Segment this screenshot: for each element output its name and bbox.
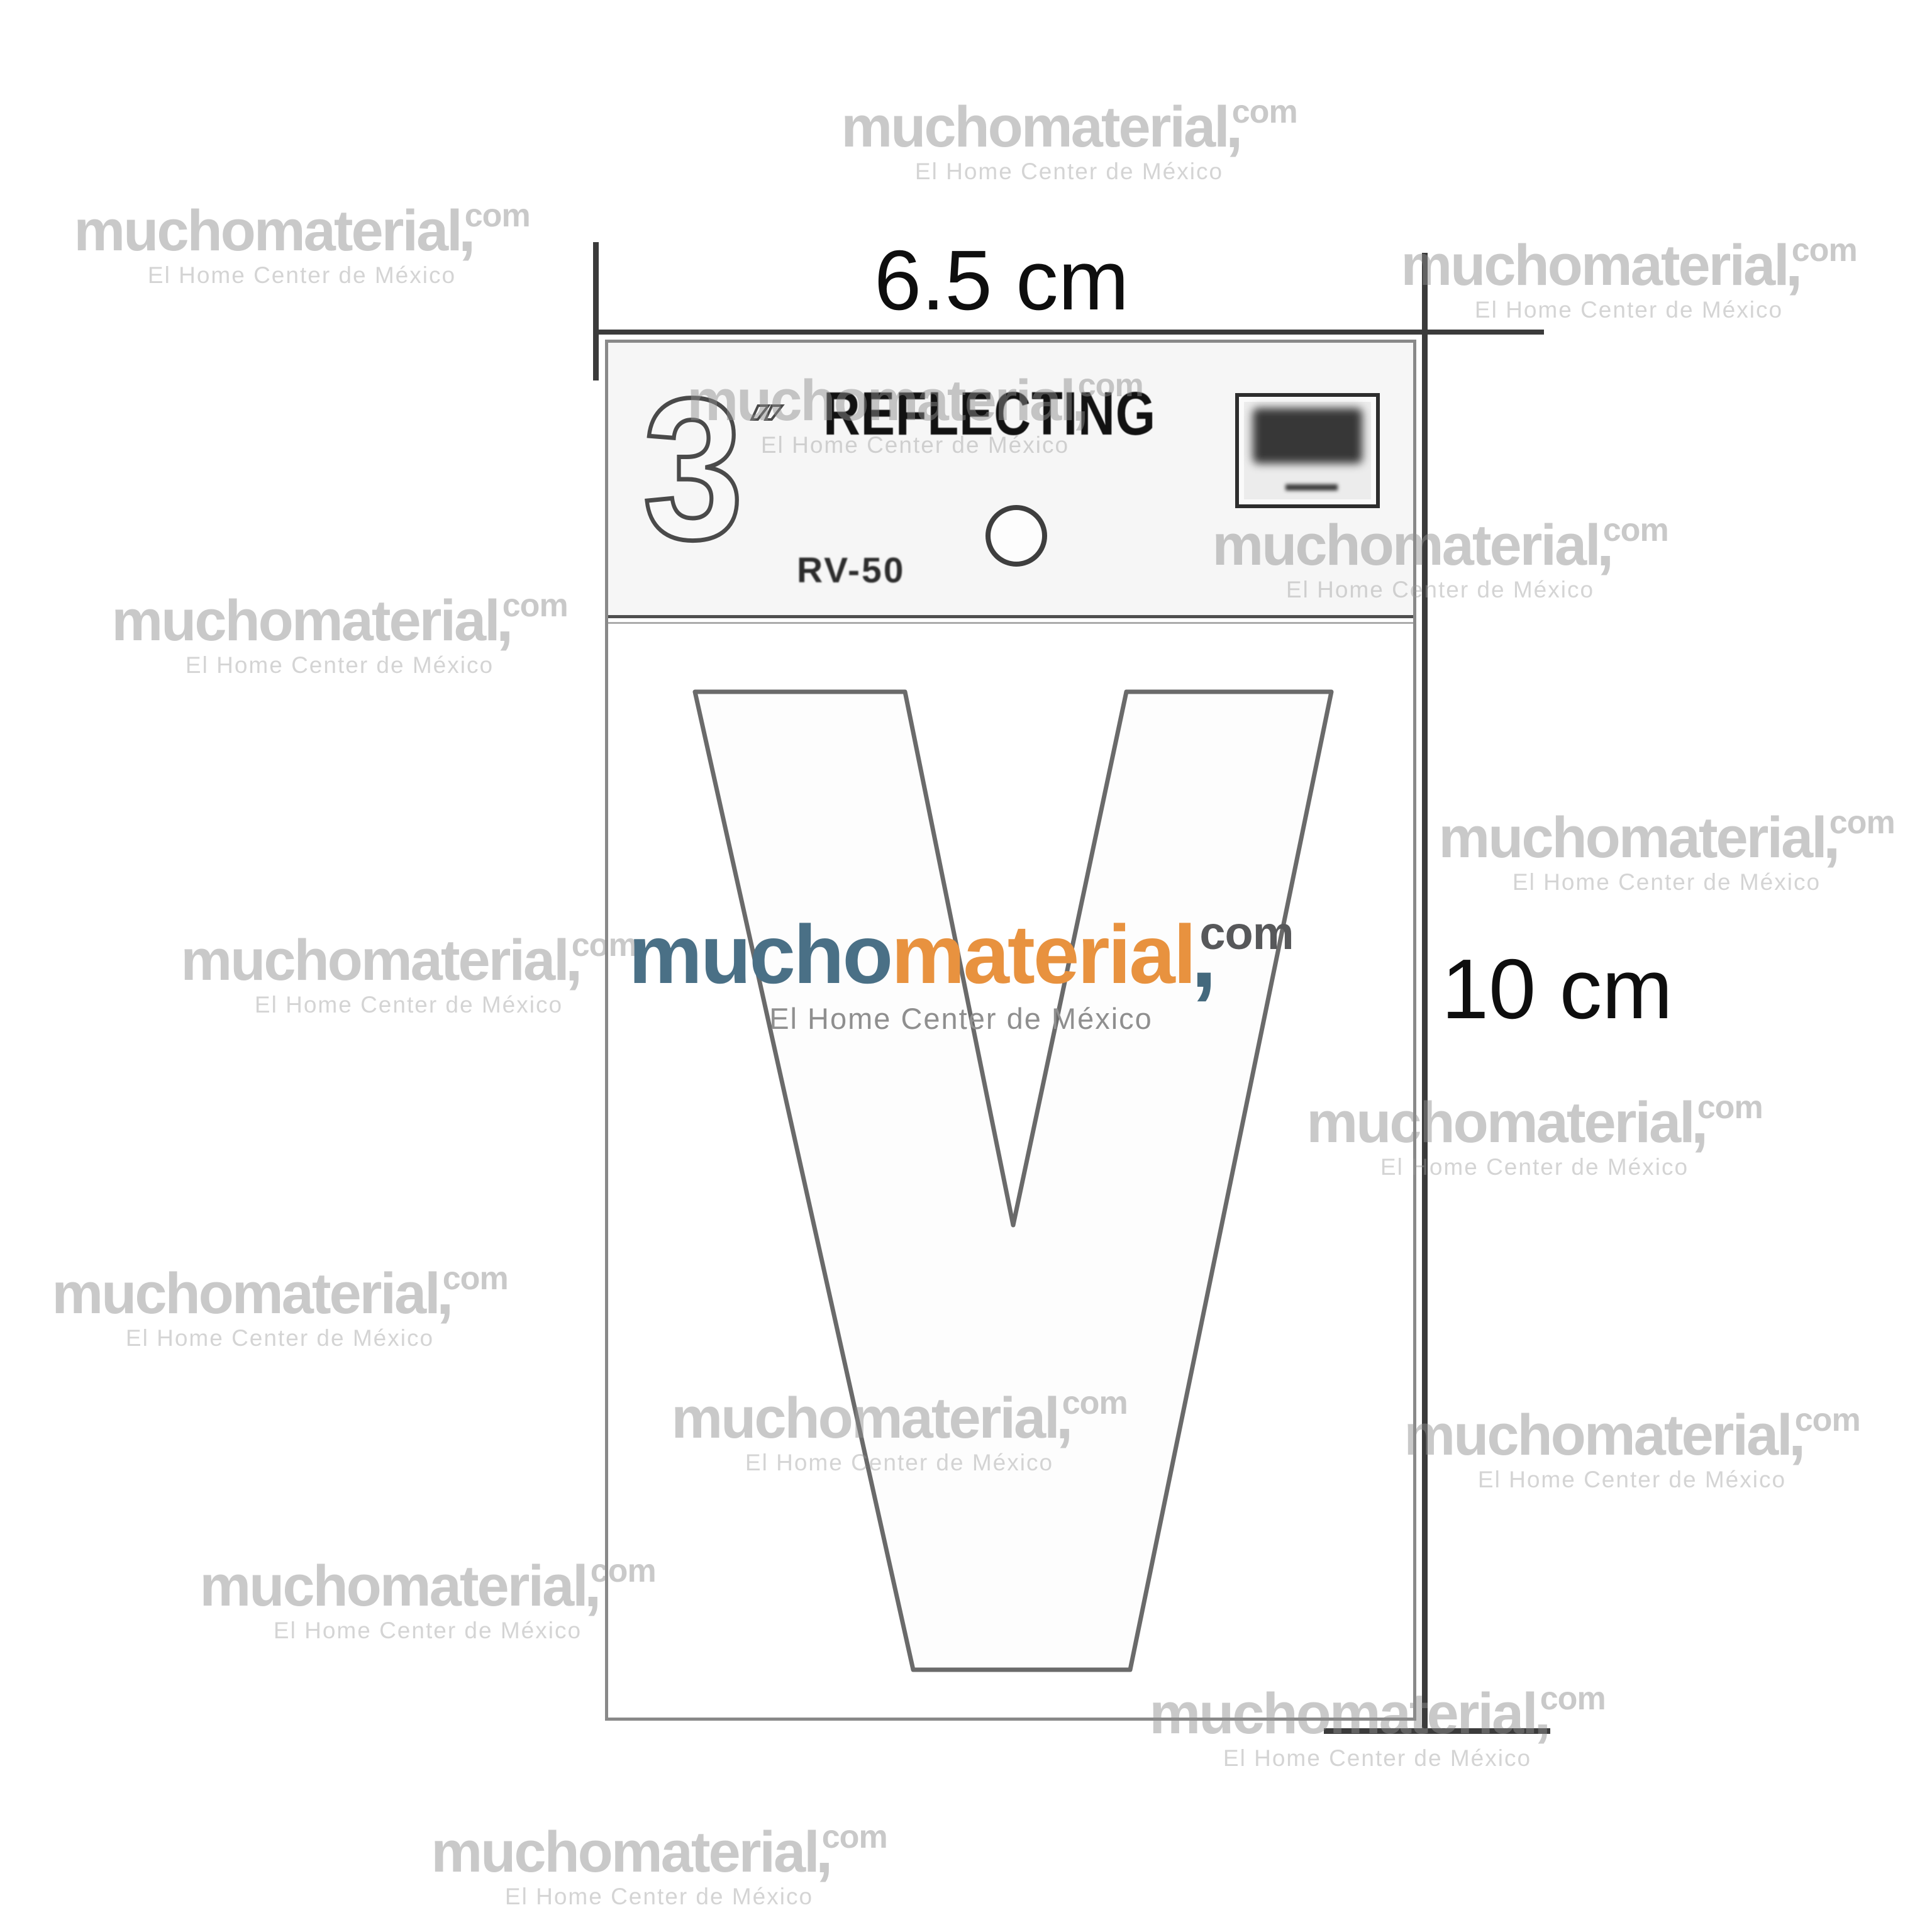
brand-logo: muchomaterial,com El Home Center de Méxi… [628,913,1293,1036]
watermark-material: material [1584,1403,1791,1467]
watermark-logo: muchomaterial,com El Home Center de Méxi… [431,1823,887,1910]
height-dimension-line [1422,253,1428,1731]
watermark-mucho: mucho [431,1820,611,1884]
watermark-logo: muchomaterial,com El Home Center de Méxi… [180,931,636,1018]
watermark-com: com [1232,94,1297,130]
watermark-dotcom: ,com [1792,236,1857,294]
hang-hole-icon [985,505,1047,567]
watermark-com: com [822,1819,887,1855]
watermark-dotcom: ,com [1603,516,1668,574]
watermark-dotcom: ,com [822,1823,887,1881]
header-separator-light [608,622,1413,624]
watermark-wordmark: muchomaterial,com [841,98,1297,156]
watermark-material: material [1487,1091,1694,1155]
watermark-tagline: El Home Center de México [841,158,1297,185]
watermark-mucho: mucho [1438,806,1619,870]
watermark-material: material [1619,806,1826,870]
inch-mark: ″ [750,398,784,474]
reflecting-label: REFLECTING [823,383,1156,444]
watermark-material: material [1021,95,1228,159]
watermark-material: material [611,1820,818,1884]
watermark-com: com [1829,804,1895,841]
watermark-com: com [502,587,568,624]
watermark-logo: muchomaterial,com El Home Center de Méxi… [111,592,567,679]
watermark-com: com [443,1260,508,1297]
height-dimension-bottom-tick [1324,1728,1550,1734]
watermark-comma: , [1823,805,1839,868]
watermark-logo: muchomaterial,com El Home Center de Méxi… [52,1265,508,1352]
watermark-com: com [465,197,530,234]
watermark-logo: muchomaterial,com El Home Center de Méxi… [1438,809,1894,896]
watermark-material: material [232,1262,439,1326]
watermark-mucho: mucho [841,95,1021,159]
watermark-logo: muchomaterial,com El Home Center de Méxi… [1401,236,1857,323]
watermark-comma: , [584,1553,600,1616]
header-separator-dark [608,615,1413,618]
watermark-tagline: El Home Center de México [74,262,530,289]
watermark-comma: , [816,1819,831,1882]
brand-dotcom: ,com [1199,913,1293,996]
watermark-comma: , [1789,1402,1804,1465]
watermark-wordmark: muchomaterial,com [52,1265,508,1323]
watermark-dotcom: ,com [465,202,530,260]
watermark-wordmark: muchomaterial,com [74,202,530,260]
watermark-tagline: El Home Center de México [199,1618,655,1644]
watermark-comma: , [496,588,512,651]
watermark-dotcom: ,com [502,592,568,650]
watermark-comma: , [436,1261,452,1324]
watermark-wordmark: muchomaterial,com [199,1557,655,1615]
watermark-dotcom: ,com [1540,1685,1606,1743]
watermark-com: com [1792,232,1857,269]
watermark-mucho: mucho [1401,233,1581,297]
size-number: 3 [643,368,743,569]
watermark-comma: , [458,198,474,261]
manufacturer-logo-mark [1253,408,1362,464]
watermark-logo: muchomaterial,com El Home Center de Méxi… [841,98,1297,185]
brand-material: material [891,908,1194,1001]
model-code-label: RV-50 [797,553,905,589]
watermark-tagline: El Home Center de México [111,652,567,679]
manufacturer-logo-icon [1235,393,1380,508]
watermark-material: material [361,928,568,992]
watermark-logo: muchomaterial,com El Home Center de Méxi… [199,1557,655,1644]
watermark-mucho: mucho [111,589,292,653]
width-dimension-left-tick [593,242,599,380]
watermark-comma: , [1534,1681,1550,1744]
watermark-wordmark: muchomaterial,com [1401,236,1857,294]
watermark-comma: , [565,928,581,991]
watermark-logo: muchomaterial,com El Home Center de Méxi… [74,202,530,289]
brand-wordmark: muchomaterial,com [628,913,1293,996]
watermark-comma: , [1691,1090,1707,1153]
watermark-com: com [1795,1402,1860,1438]
watermark-dotcom: ,com [443,1265,508,1323]
card-header: 3 ″ REFLECTING RV-50 [608,343,1413,615]
watermark-mucho: mucho [180,928,361,992]
watermark-com: com [1697,1089,1763,1126]
manufacturer-logo-subline [1285,484,1338,491]
watermark-material: material [254,199,461,263]
watermark-com: com [1603,512,1668,548]
watermark-tagline: El Home Center de México [180,992,636,1018]
watermark-wordmark: muchomaterial,com [431,1823,887,1881]
watermark-comma: , [1226,94,1241,157]
watermark-dotcom: ,com [1829,809,1895,867]
watermark-wordmark: muchomaterial,com [180,931,636,989]
watermark-com: com [1540,1680,1606,1717]
watermark-logo: muchomaterial,com El Home Center de Méxi… [1404,1406,1860,1493]
watermark-wordmark: muchomaterial,com [111,592,567,650]
watermark-mucho: mucho [199,1554,380,1618]
watermark-material: material [380,1554,587,1618]
watermark-tagline: El Home Center de México [1401,297,1857,323]
watermark-dotcom: ,com [1232,98,1297,156]
watermark-mucho: mucho [74,199,254,263]
watermark-tagline: El Home Center de México [52,1325,508,1352]
watermark-tagline: El Home Center de México [1404,1467,1860,1493]
watermark-mucho: mucho [52,1262,232,1326]
watermark-wordmark: muchomaterial,com [1404,1406,1860,1464]
brand-mucho: mucho [628,908,891,1001]
watermark-dotcom: ,com [1697,1094,1763,1152]
height-dimension-label: 10 cm [1441,947,1673,1031]
watermark-wordmark: muchomaterial,com [1438,809,1894,867]
width-dimension-line [596,330,1544,335]
watermark-material: material [292,589,499,653]
brand-com: com [1199,907,1293,959]
watermark-tagline: El Home Center de México [1149,1745,1605,1772]
watermark-dotcom: ,com [1795,1406,1860,1464]
watermark-mucho: mucho [1404,1403,1584,1467]
watermark-comma: , [1785,233,1801,296]
watermark-tagline: El Home Center de México [1438,869,1894,896]
watermark-comma: , [1597,513,1613,575]
watermark-material: material [1581,233,1788,297]
watermark-tagline: El Home Center de México [431,1884,887,1910]
width-dimension-label: 6.5 cm [874,238,1129,323]
